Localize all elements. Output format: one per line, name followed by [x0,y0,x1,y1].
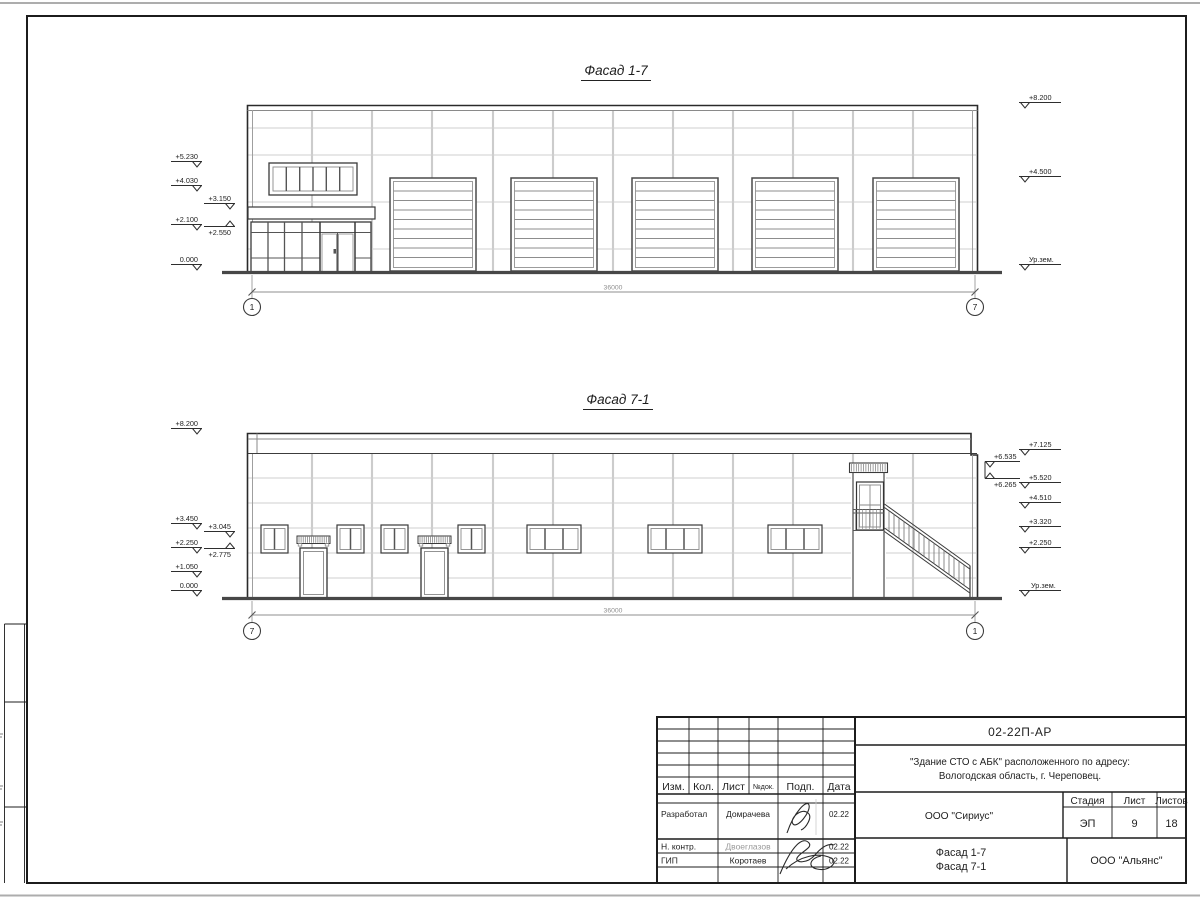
dimension-label: 36000 [604,608,623,615]
dimension-label: 36000 [604,285,623,292]
row-date: 02.22 [829,810,850,819]
col-header-list: Лист [722,781,745,793]
drawing-title-line2: Фасад 7-1 [936,861,987,873]
elevation-label: 0.000 [180,581,198,590]
signature-scribbles [780,799,834,874]
staircase-railing [885,504,971,598]
row-date: 02.22 [829,843,850,852]
col-header-kol: Кол. [693,781,714,793]
sheet-header: Лист [1124,796,1146,807]
elevation-label: Ур.зем. [1029,255,1054,264]
entrance-door [297,536,330,598]
sheet-number: 9 [1131,818,1137,830]
sheets-total: 18 [1165,818,1177,830]
project-name-line2: Вологодская область, г. Череповец. [939,771,1101,782]
elevation-marks-left: +5.230 +4.030 +3.150 +2.100 +2.550 0.000 [171,152,235,270]
drawing-frame [27,16,1186,883]
clipped-side-text [0,734,3,825]
col-header-doc: №док. [753,782,774,791]
facade-7-1-drawing: Фасад 7-1 [171,392,1061,640]
stage-header: Стадия [1070,796,1104,807]
facade-1-7-title: Фасад 1-7 [584,63,648,78]
elevation-label: +7.125 [1029,440,1052,449]
elevation-label: 0.000 [180,255,198,264]
elevation-label: +3.320 [1029,517,1052,526]
row-name: Коротаев [730,856,767,866]
elevation-label: +4.510 [1029,493,1052,502]
elevation-label: +4.500 [1029,167,1052,176]
axis-bubble-label: 7 [973,302,978,312]
window [458,525,485,553]
axis-bubbles: 7 1 [244,623,984,640]
col-header-date: Дата [827,781,850,793]
elevation-label: +3.045 [208,522,231,531]
project-name-line1: "Здание СТО с АБК" расположенного по адр… [910,757,1130,768]
window [527,525,581,553]
row-date: 02.22 [829,857,850,866]
elevation-label: +2.100 [175,215,198,224]
elevation-label: +3.450 [175,514,198,523]
elevation-label: +5.520 [1029,473,1052,482]
elevation-label: +6.265 [994,480,1017,489]
row-name: Домрачева [726,809,770,819]
axis-bubble-label: 1 [973,626,978,636]
facade-drawing: Фасад 1-7 [0,0,1200,900]
sheets-header: Листов [1155,796,1188,807]
window [768,525,822,553]
storefront-glazing [251,222,371,272]
elevation-label: +6.535 [994,452,1017,461]
elevation-label: +2.250 [175,538,198,547]
garage-door [632,178,718,271]
elevation-marks-right: +7.125 +6.535 +6.265 +5.520 +4.510 +3.32… [985,440,1061,596]
elevation-label: +2.775 [208,550,231,559]
garage-door [390,178,476,271]
ribbon-window [269,163,357,195]
window [648,525,702,553]
row-role: Разработал [661,809,707,819]
stage-value: ЭП [1080,818,1096,830]
row-role: ГИП [661,856,678,866]
elevation-marks-left: +8.200 +3.450 +3.045 +2.250 +2.775 +1.05… [171,419,235,596]
entrance-door [418,536,451,598]
axis-bubbles: 1 7 [244,299,984,316]
garage-door [511,178,597,271]
facade-7-1-title: Фасад 7-1 [586,392,649,407]
entrance-canopy [248,207,375,219]
side-stamp [0,624,27,883]
elevation-label: +5.230 [175,152,198,161]
row-name: Двоеглазов [725,842,771,852]
elevation-label: +8.200 [175,419,198,428]
garage-door [873,178,959,271]
dimension-36000: 36000 [249,275,979,299]
col-header-sign: Подп. [787,781,815,793]
drawing-title-line1: Фасад 1-7 [936,847,987,859]
axis-bubble-label: 7 [250,626,255,636]
title-block: Изм. Кол. Лист №док. Подп. Дата Разработ… [657,717,1188,883]
dimension-36000: 36000 [249,601,979,623]
designer-org: ООО "Сириус" [925,811,994,822]
elevation-label: +2.550 [208,228,231,237]
col-header-izm: Изм. [662,781,685,793]
elevation-label: +3.150 [208,194,231,203]
elevation-marks-right: +8.200 +4.500 Ур.зем. [1019,93,1061,270]
window [381,525,408,553]
garage-door [752,178,838,271]
contractor-org: ООО "Альянс" [1090,855,1162,867]
elevation-label: +1.050 [175,562,198,571]
window [337,525,364,553]
document-number: 02-22П-АР [988,725,1052,739]
facade-1-7-drawing: Фасад 1-7 [171,63,1061,316]
drawing-sheet: Фасад 1-7 [0,0,1200,900]
elevation-label: +2.250 [1029,538,1052,547]
elevation-label: +8.200 [1029,93,1052,102]
elevation-label: +4.030 [175,176,198,185]
door-handle [334,249,337,254]
axis-bubble-label: 1 [250,302,255,312]
elevation-label: Ур.зем. [1031,581,1056,590]
row-role: Н. контр. [661,842,696,852]
window [261,525,288,553]
